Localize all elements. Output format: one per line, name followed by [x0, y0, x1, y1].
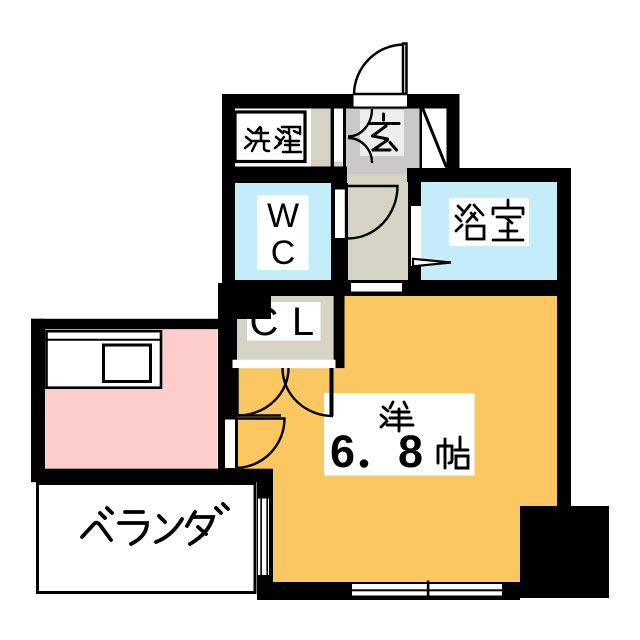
svg-text:6: 6: [330, 426, 355, 477]
svg-text:8: 8: [398, 426, 423, 477]
svg-text:C: C: [271, 234, 296, 272]
svg-text:W: W: [267, 197, 299, 235]
svg-text:L: L: [292, 300, 314, 344]
